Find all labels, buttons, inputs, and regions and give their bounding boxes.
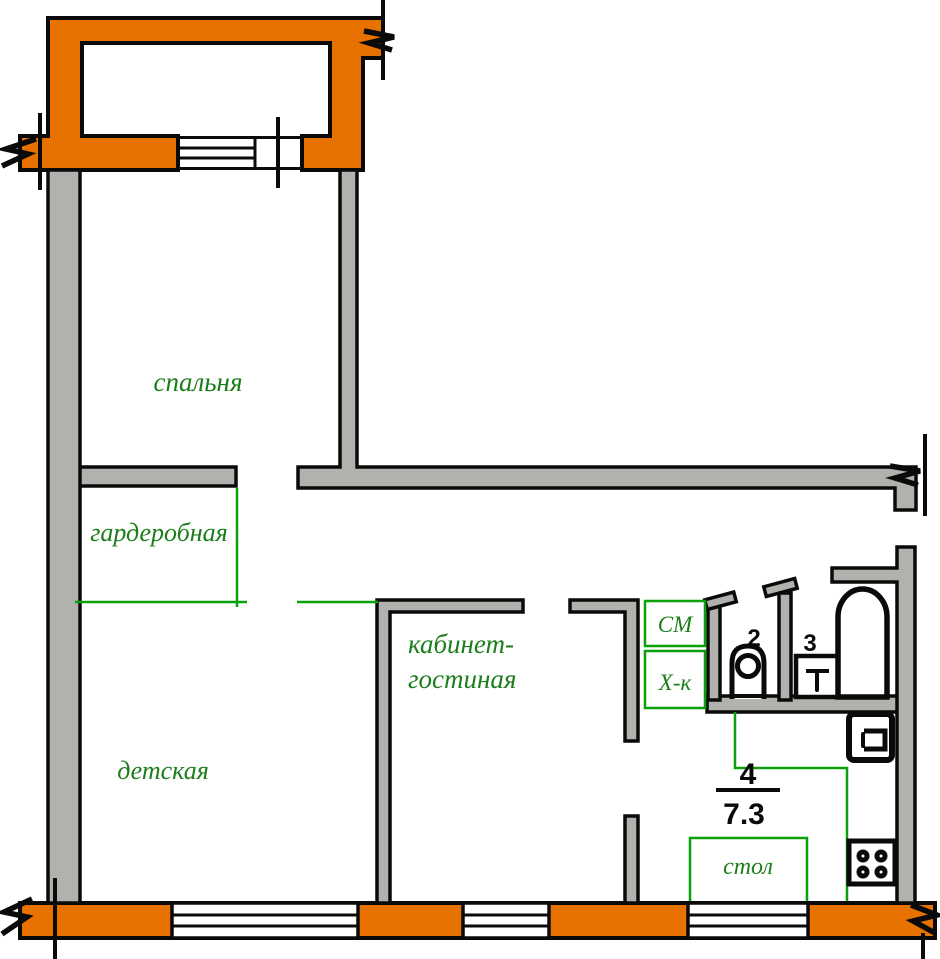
study-label-line2: гостиная: [408, 664, 516, 694]
wall-corridor: [298, 170, 916, 510]
window-bottom-middle: [463, 903, 549, 938]
nursery-label: детская: [117, 756, 209, 785]
floor-plan-svg: спальня гардеробная детская кабинет- гос…: [0, 0, 940, 959]
wc-door-leaf: [705, 592, 737, 609]
wall-wardrobe-top: [77, 467, 236, 486]
kitchen-number: 4: [740, 758, 757, 791]
stove-icon: [849, 841, 895, 884]
kitchen-sink-icon: [849, 714, 892, 760]
wall-exterior-left: [48, 170, 80, 903]
toilet-icon: [732, 646, 764, 699]
fridge-label: Х-к: [658, 670, 692, 695]
kitchen-area: 7.3: [723, 798, 765, 831]
wc-number: 2: [747, 625, 760, 652]
window-bottom-kitchen: [688, 903, 808, 938]
study-label-line1: кабинет-: [408, 629, 514, 659]
washbasin-icon: [796, 656, 838, 697]
floor-plan: спальня гардеробная детская кабинет- гос…: [0, 0, 940, 959]
wardrobe-label: гардеробная: [90, 518, 228, 547]
wall-bath-post: [779, 593, 791, 700]
table-label: стол: [723, 854, 773, 880]
wall-study-right-lower: [625, 816, 638, 903]
washer-label: СМ: [658, 612, 694, 637]
bedroom-label: спальня: [154, 367, 243, 397]
wall-wc-post: [708, 601, 720, 700]
window-bottom-left: [172, 903, 358, 938]
bathtub-icon: [838, 589, 887, 697]
bath-number: 3: [803, 630, 816, 657]
wall-study-right-upper: [570, 600, 638, 741]
